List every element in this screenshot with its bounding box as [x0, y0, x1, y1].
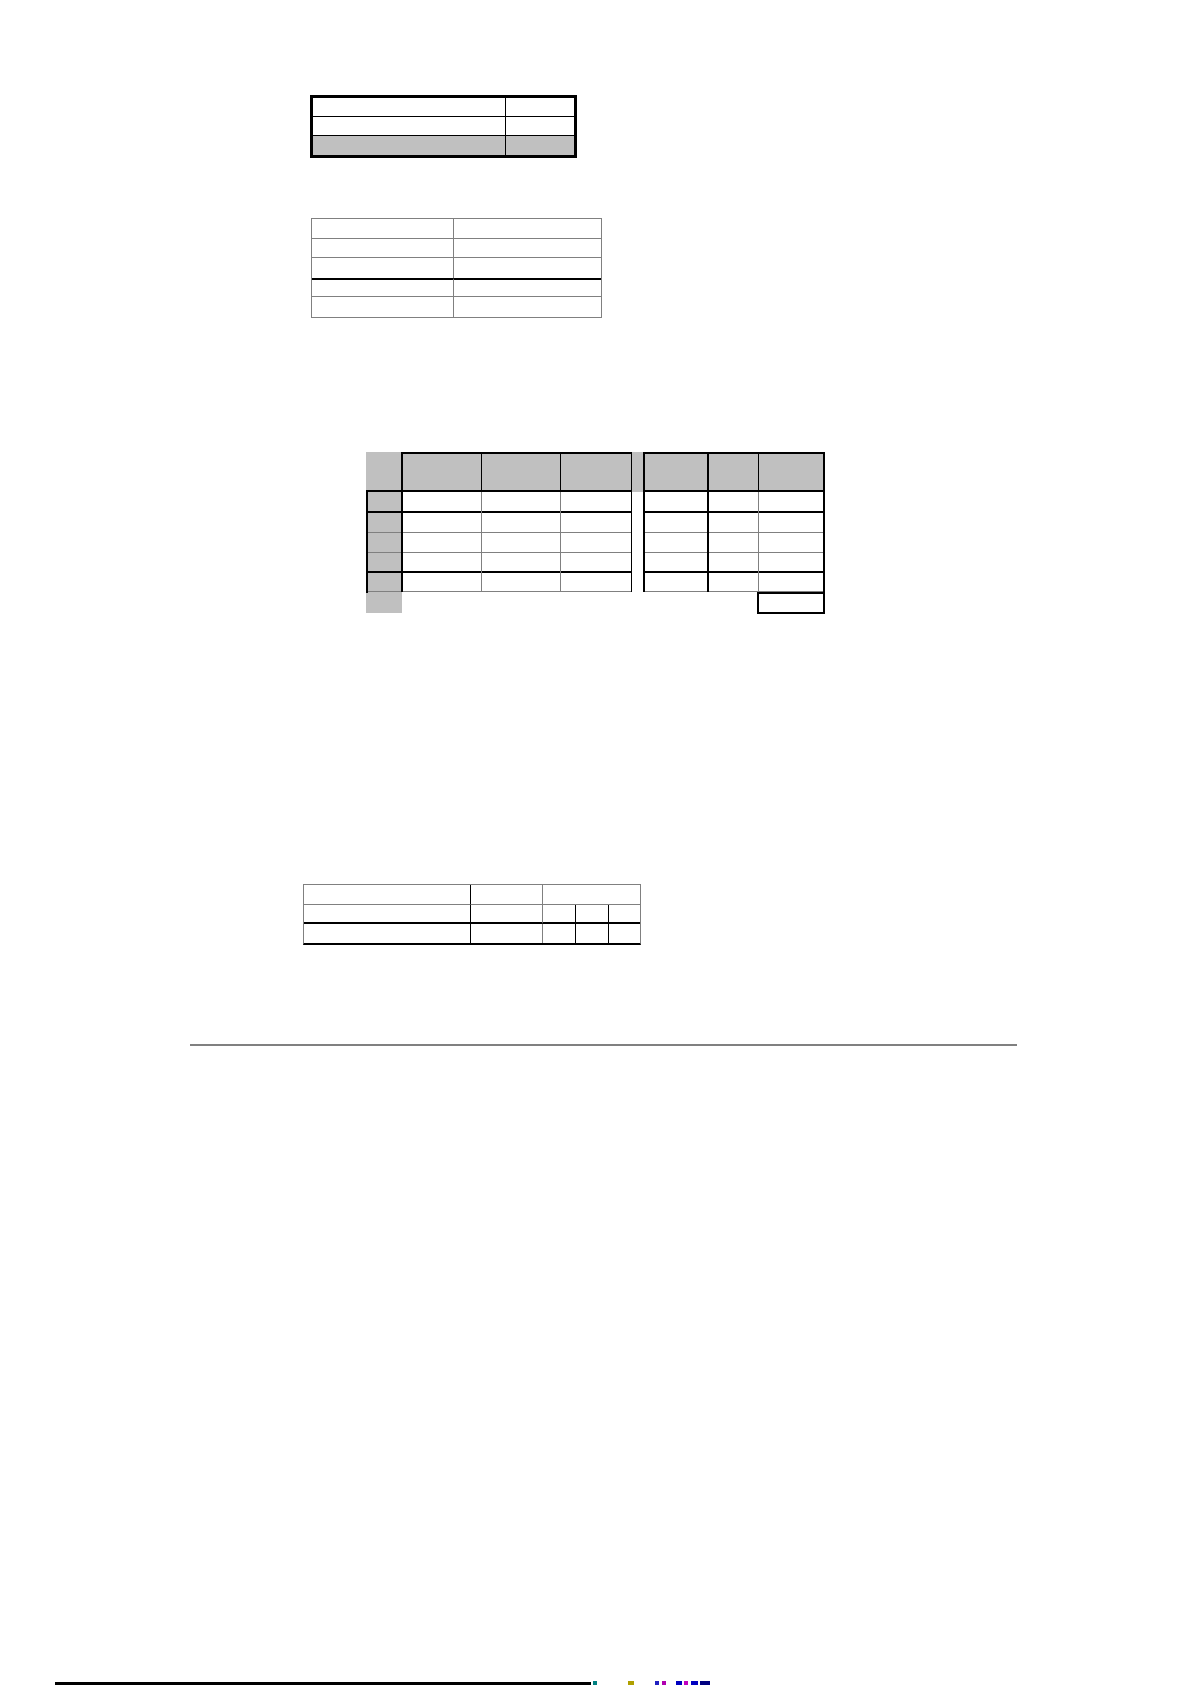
table-3-border-line — [560, 492, 561, 592]
table-4-cell — [471, 885, 543, 905]
table-3-border-line — [643, 511, 825, 513]
table-3 — [366, 452, 826, 615]
table-4-cell — [304, 885, 471, 905]
table-2-cell — [312, 239, 454, 259]
table-3-border-line — [823, 452, 825, 592]
table-2-cell — [454, 297, 601, 317]
table-3-border-line — [758, 452, 759, 492]
footer-text-fragment — [684, 1681, 688, 1685]
table-2-cell — [312, 297, 454, 317]
table-4-cell — [471, 924, 543, 943]
table-4-cell — [543, 905, 576, 924]
table-3-border-line — [643, 490, 825, 492]
footer-text-fragment — [655, 1681, 659, 1685]
table-3-border-line — [643, 571, 825, 573]
table-3-border-line — [366, 490, 368, 593]
table-3-border-line — [402, 452, 632, 454]
table-4-merged-cell — [543, 885, 640, 905]
table-1-cell — [313, 117, 506, 136]
table-1-cell — [506, 117, 574, 136]
table-3-border-line — [707, 452, 709, 592]
table-3-border-line — [481, 492, 482, 592]
footer-text-fragment — [700, 1681, 710, 1685]
table-2-cell — [312, 219, 454, 239]
table-3-border-line — [560, 452, 561, 492]
footer-text-fragment — [676, 1681, 682, 1685]
table-1 — [310, 95, 577, 158]
table-3-border-line — [643, 452, 645, 592]
footer-text-fragment — [662, 1681, 666, 1685]
footer-text-fragment — [628, 1681, 634, 1685]
table-1-shaded-cell — [506, 136, 574, 155]
table-1-cell — [313, 98, 506, 117]
table-3-border-line — [366, 532, 632, 533]
table-4-cell — [543, 924, 576, 943]
footer-text-fragment — [691, 1681, 698, 1685]
table-4-cell — [471, 905, 543, 924]
separator-rule — [190, 1044, 1017, 1046]
table-2-cell — [454, 219, 601, 239]
table-2-cell — [454, 239, 601, 259]
table-2-cell — [454, 278, 601, 298]
table-2-cell — [312, 258, 454, 278]
table-4-cell — [576, 924, 609, 943]
table-3-border-line — [366, 591, 632, 592]
table-4-cell — [609, 924, 640, 943]
table-4-cell — [609, 905, 640, 924]
table-3-border-line — [631, 452, 632, 592]
table-3-total-cell — [757, 592, 825, 614]
table-4-cell — [304, 905, 471, 924]
table-1-cell — [506, 98, 574, 117]
table-3-border-line — [643, 552, 825, 553]
table-2-cell — [312, 278, 454, 298]
table-3-border-line — [366, 552, 632, 553]
table-4-cell — [304, 924, 471, 943]
table-3-border-line — [366, 511, 632, 513]
table-4 — [303, 884, 641, 945]
table-3-border-line — [481, 452, 482, 492]
table-4-cell — [576, 905, 609, 924]
table-1-shaded-cell — [313, 136, 506, 155]
table-3-border-line — [366, 490, 632, 492]
document-page — [0, 0, 1191, 1685]
table-3-border-line — [643, 532, 825, 533]
table-2-cell — [454, 258, 601, 278]
table-3-header-shading — [366, 452, 825, 492]
footer-text-fragment — [593, 1681, 597, 1685]
table-3-border-line — [366, 571, 632, 573]
table-3-border-line — [643, 452, 825, 454]
table-3-border-line — [401, 452, 403, 592]
table-3-border-line — [758, 492, 759, 592]
table-2 — [311, 218, 602, 318]
